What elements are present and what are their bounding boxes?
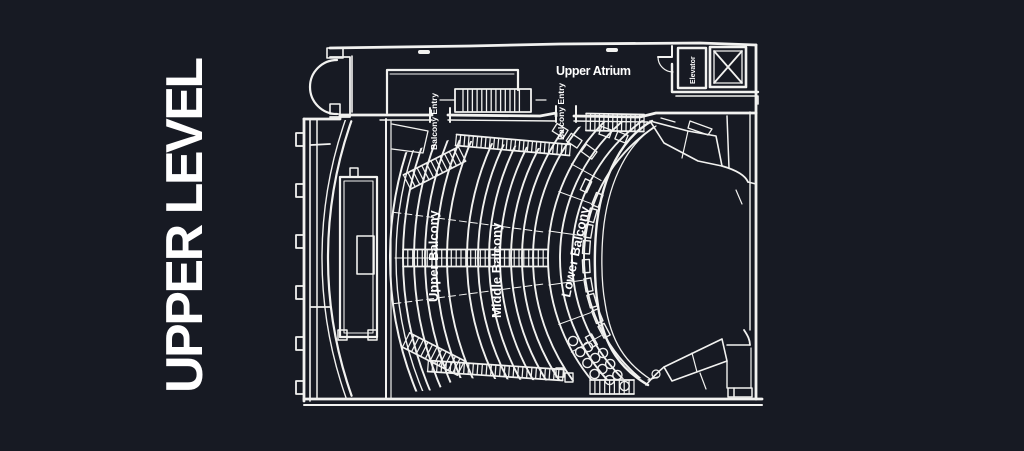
svg-text:Upper Atrium: Upper Atrium (556, 64, 631, 78)
svg-text:Balcony Entry: Balcony Entry (429, 93, 439, 150)
svg-text:Balcony Entry: Balcony Entry (556, 83, 566, 140)
svg-text:Elevator: Elevator (690, 56, 697, 84)
svg-text:Upper Balcony: Upper Balcony (426, 209, 441, 302)
svg-text:Middle Balcony: Middle Balcony (489, 222, 504, 318)
